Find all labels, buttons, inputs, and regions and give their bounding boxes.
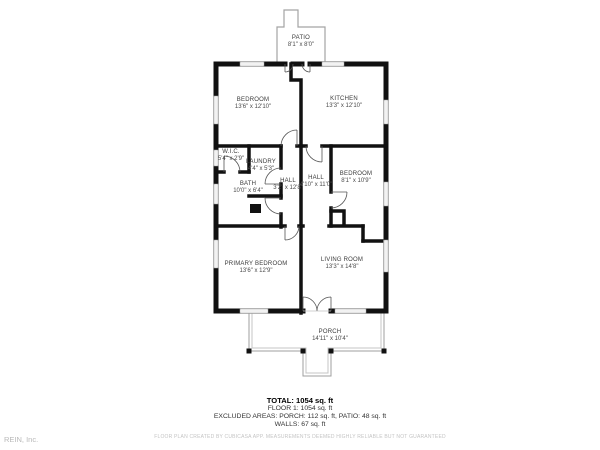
area-summary: TOTAL: 1054 sq. ft FLOOR 1: 1054 sq. ft … — [0, 396, 600, 429]
floor-plan-drawing — [0, 0, 600, 450]
floor-plan-page: PATIO 8'1" x 8'0" BEDROOM 13'6" x 12'10"… — [0, 0, 600, 450]
bath-fixture — [250, 204, 261, 213]
summary-walls: WALLS: 67 sq. ft — [0, 421, 600, 429]
disclaimer-text: FLOOR PLAN CREATED BY CUBICASA APP. MEAS… — [0, 434, 600, 440]
interior-walls — [216, 64, 386, 313]
door-swings — [224, 64, 347, 311]
summary-floor: FLOOR 1: 1054 sq. ft — [0, 405, 600, 413]
summary-excluded-areas: EXCLUDED AREAS: PORCH: 112 sq. ft, PATIO… — [0, 413, 600, 421]
summary-total: TOTAL: 1054 sq. ft — [0, 396, 600, 405]
patio-outline — [277, 10, 325, 64]
porch-outline — [249, 313, 384, 376]
rein-watermark: REIN, Inc. — [4, 435, 38, 444]
